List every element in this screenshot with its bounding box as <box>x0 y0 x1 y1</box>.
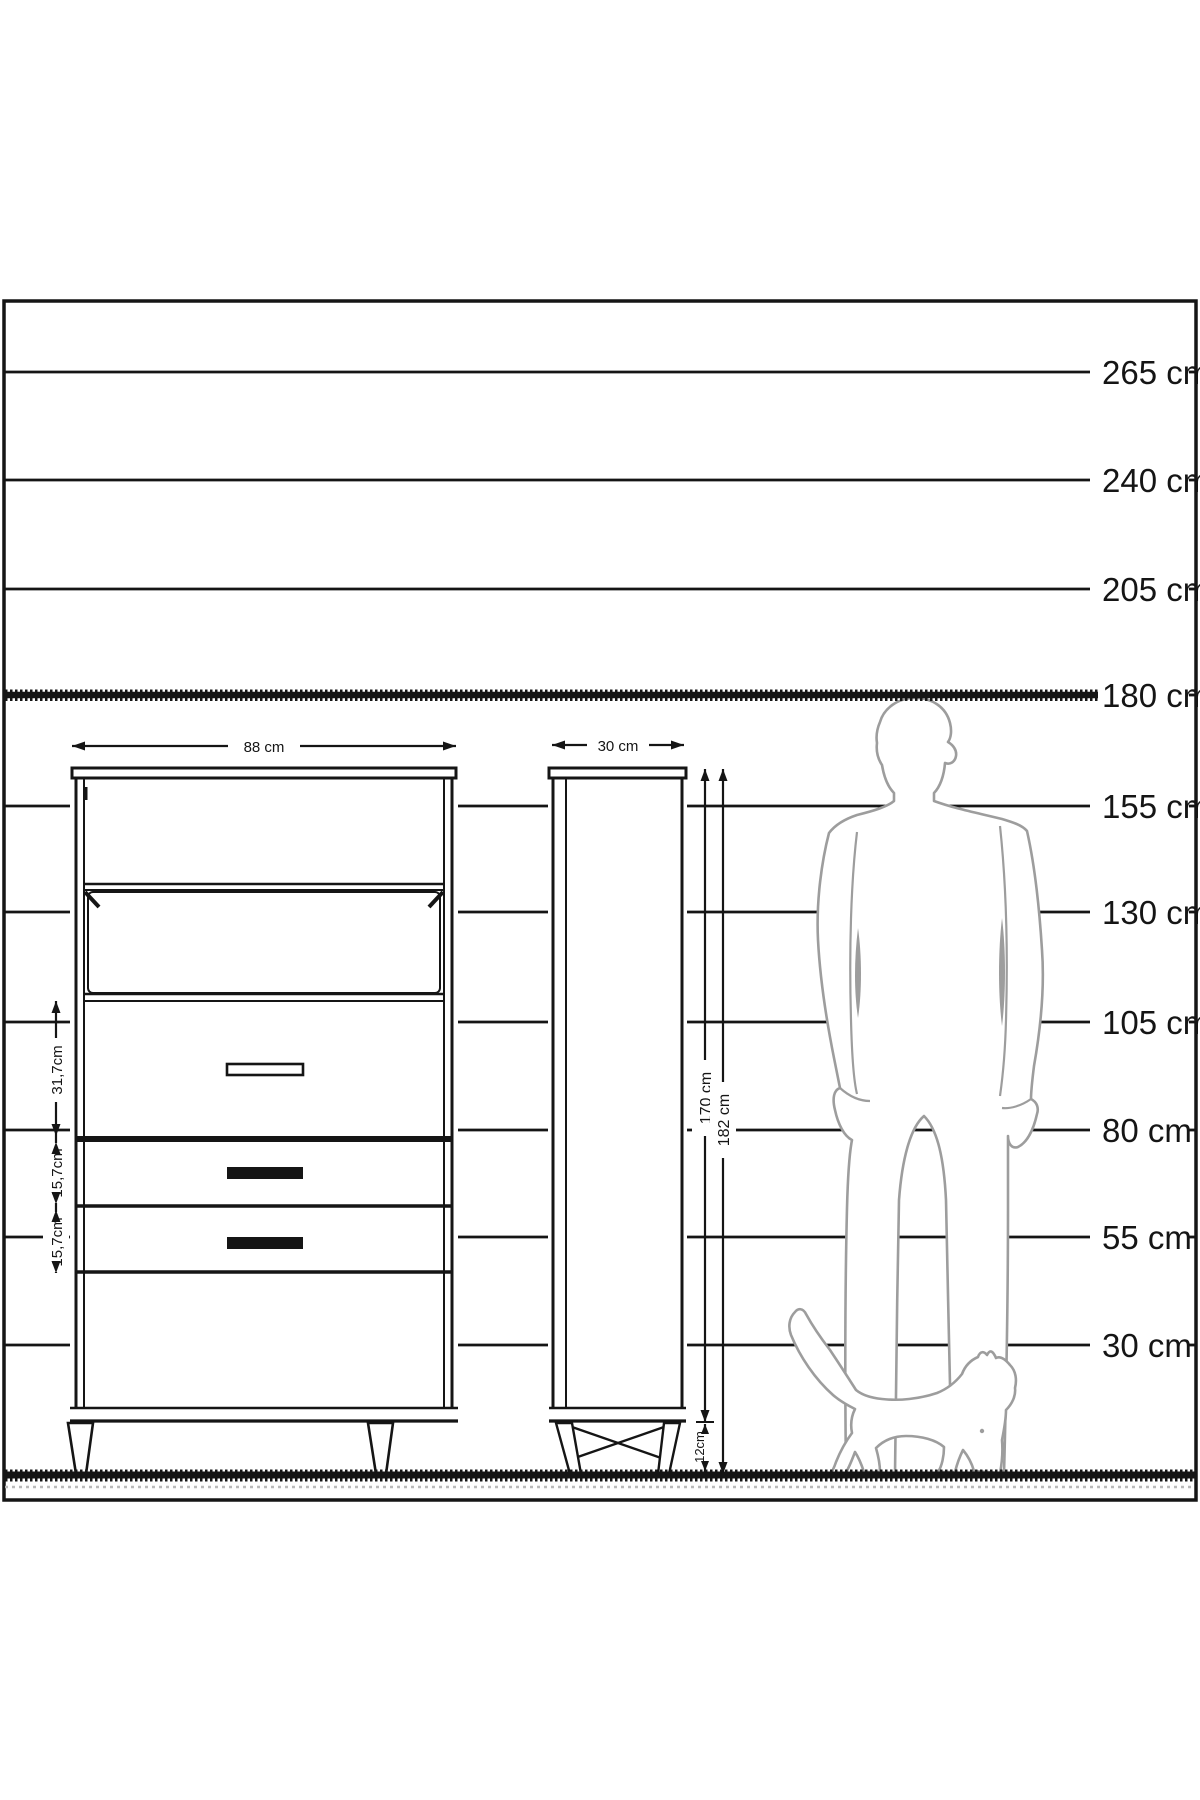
scale-label-80: 80 cm <box>1102 1112 1192 1149</box>
scale-label-205: 205 cm <box>1102 571 1200 608</box>
scale-label-30: 30 cm <box>1102 1327 1192 1364</box>
section2-label: 15,7cm <box>49 1148 66 1197</box>
side-view-body-mask <box>548 766 687 1424</box>
line-180cm-thick <box>5 691 1098 700</box>
hinge-mark <box>84 787 88 800</box>
side-view-cabinet <box>548 766 687 1474</box>
front-top-cap <box>72 768 456 778</box>
total-height-label: 182 cm <box>716 1094 733 1146</box>
furniture-dimension-diagram: 265 cm 240 cm 205 cm 180 cm 155 cm 130 c… <box>0 0 1200 1800</box>
side-top-cap <box>549 768 686 778</box>
scale-label-105: 105 cm <box>1102 1004 1200 1041</box>
front-view-cabinet <box>68 766 458 1474</box>
scale-label-265: 265 cm <box>1102 354 1200 391</box>
front-view-body-mask <box>70 766 458 1424</box>
scale-label-180: 180 cm <box>1102 677 1200 714</box>
front-width-label: 88 cm <box>244 739 285 756</box>
side-depth-label: 30 cm <box>598 738 639 755</box>
section1-label: 31,7cm <box>49 1045 66 1094</box>
leg-height-label: 12cm <box>692 1431 707 1463</box>
scale-label-55: 55 cm <box>1102 1219 1192 1256</box>
leg-height-dimension: 12cm <box>688 1422 714 1472</box>
drawer3-handle <box>227 1237 303 1249</box>
section3-label: 15,7cm <box>49 1217 66 1266</box>
diagram-stage: 265 cm 240 cm 205 cm 180 cm 155 cm 130 c… <box>0 0 1200 1800</box>
drawer2-handle <box>227 1167 303 1179</box>
scale-label-155: 155 cm <box>1102 788 1200 825</box>
scale-label-240: 240 cm <box>1102 462 1200 499</box>
scale-label-130: 130 cm <box>1102 894 1200 931</box>
drawer1-handle <box>227 1064 303 1075</box>
cat-spot <box>980 1429 984 1433</box>
